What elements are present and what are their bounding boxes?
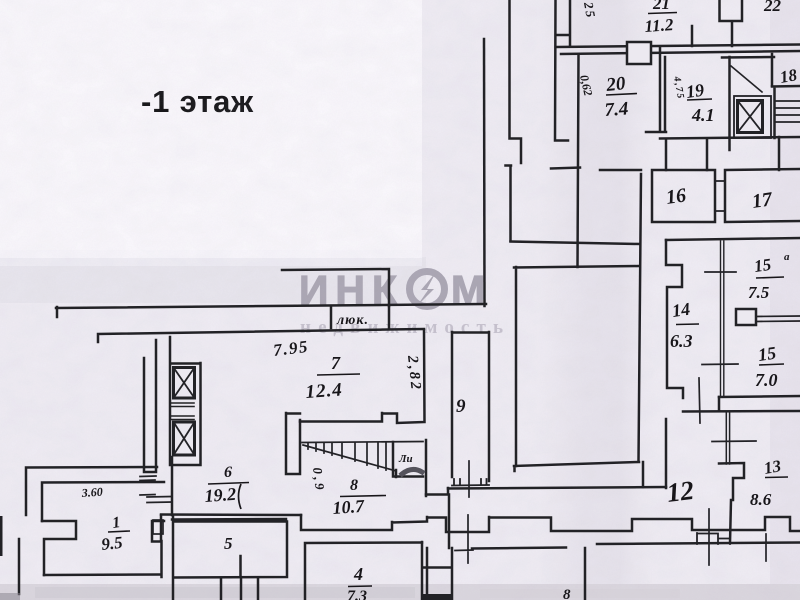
svg-text:7: 7	[331, 353, 341, 373]
svg-text:6: 6	[224, 464, 232, 481]
svg-text:люк.: люк.	[336, 313, 369, 328]
svg-text:5: 5	[224, 534, 233, 553]
svg-text:15: 15	[757, 343, 778, 365]
svg-text:10.7: 10.7	[332, 496, 366, 518]
svg-text:7.4: 7.4	[604, 98, 629, 121]
svg-text:9: 9	[456, 396, 466, 417]
svg-text:8.6: 8.6	[750, 490, 772, 509]
svg-text:Ли: Ли	[398, 453, 413, 465]
svg-text:12.4: 12.4	[305, 379, 344, 403]
svg-text:7.3: 7.3	[347, 588, 367, 600]
svg-text:7.5: 7.5	[748, 283, 770, 302]
svg-text:15: 15	[753, 255, 773, 276]
svg-text:19.2: 19.2	[204, 484, 237, 506]
svg-text:8: 8	[350, 477, 358, 494]
svg-text:8: 8	[563, 587, 571, 600]
svg-text:16: 16	[665, 184, 688, 209]
svg-text:4: 4	[353, 564, 363, 584]
svg-text:0,9: 0,9	[310, 467, 328, 494]
svg-text:25: 25	[581, 0, 599, 20]
svg-text:3.60: 3.60	[80, 485, 103, 501]
svg-text:21: 21	[652, 0, 670, 13]
svg-text:11.2: 11.2	[644, 15, 675, 36]
svg-text:9.5: 9.5	[100, 533, 124, 554]
svg-text:4.1: 4.1	[691, 105, 715, 125]
svg-text:17: 17	[751, 188, 775, 213]
svg-text:a: a	[784, 251, 790, 263]
svg-text:22: 22	[763, 0, 782, 15]
svg-text:20: 20	[604, 73, 627, 96]
svg-text:7.0: 7.0	[755, 370, 778, 390]
svg-text:12: 12	[665, 475, 695, 508]
svg-text:14: 14	[671, 299, 692, 321]
svg-text:6.3: 6.3	[670, 331, 693, 351]
